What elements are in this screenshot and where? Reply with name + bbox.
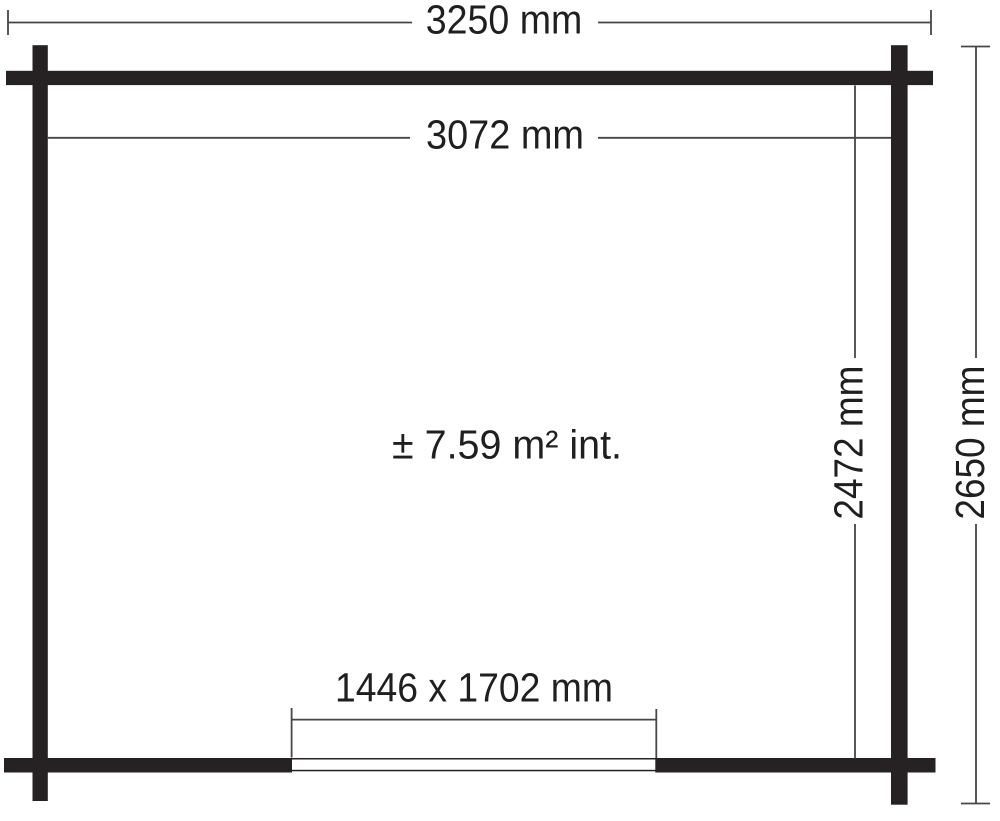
svg-text:3250 mm: 3250 mm (426, 0, 583, 43)
svg-text:± 7.59 m² int.: ± 7.59 m² int. (392, 421, 622, 467)
svg-text:1446 x 1702 mm: 1446 x 1702 mm (335, 664, 613, 710)
svg-text:3072 mm: 3072 mm (426, 112, 584, 158)
svg-text:2472 mm: 2472 mm (826, 366, 872, 520)
svg-text:2650 mm: 2650 mm (947, 366, 993, 520)
